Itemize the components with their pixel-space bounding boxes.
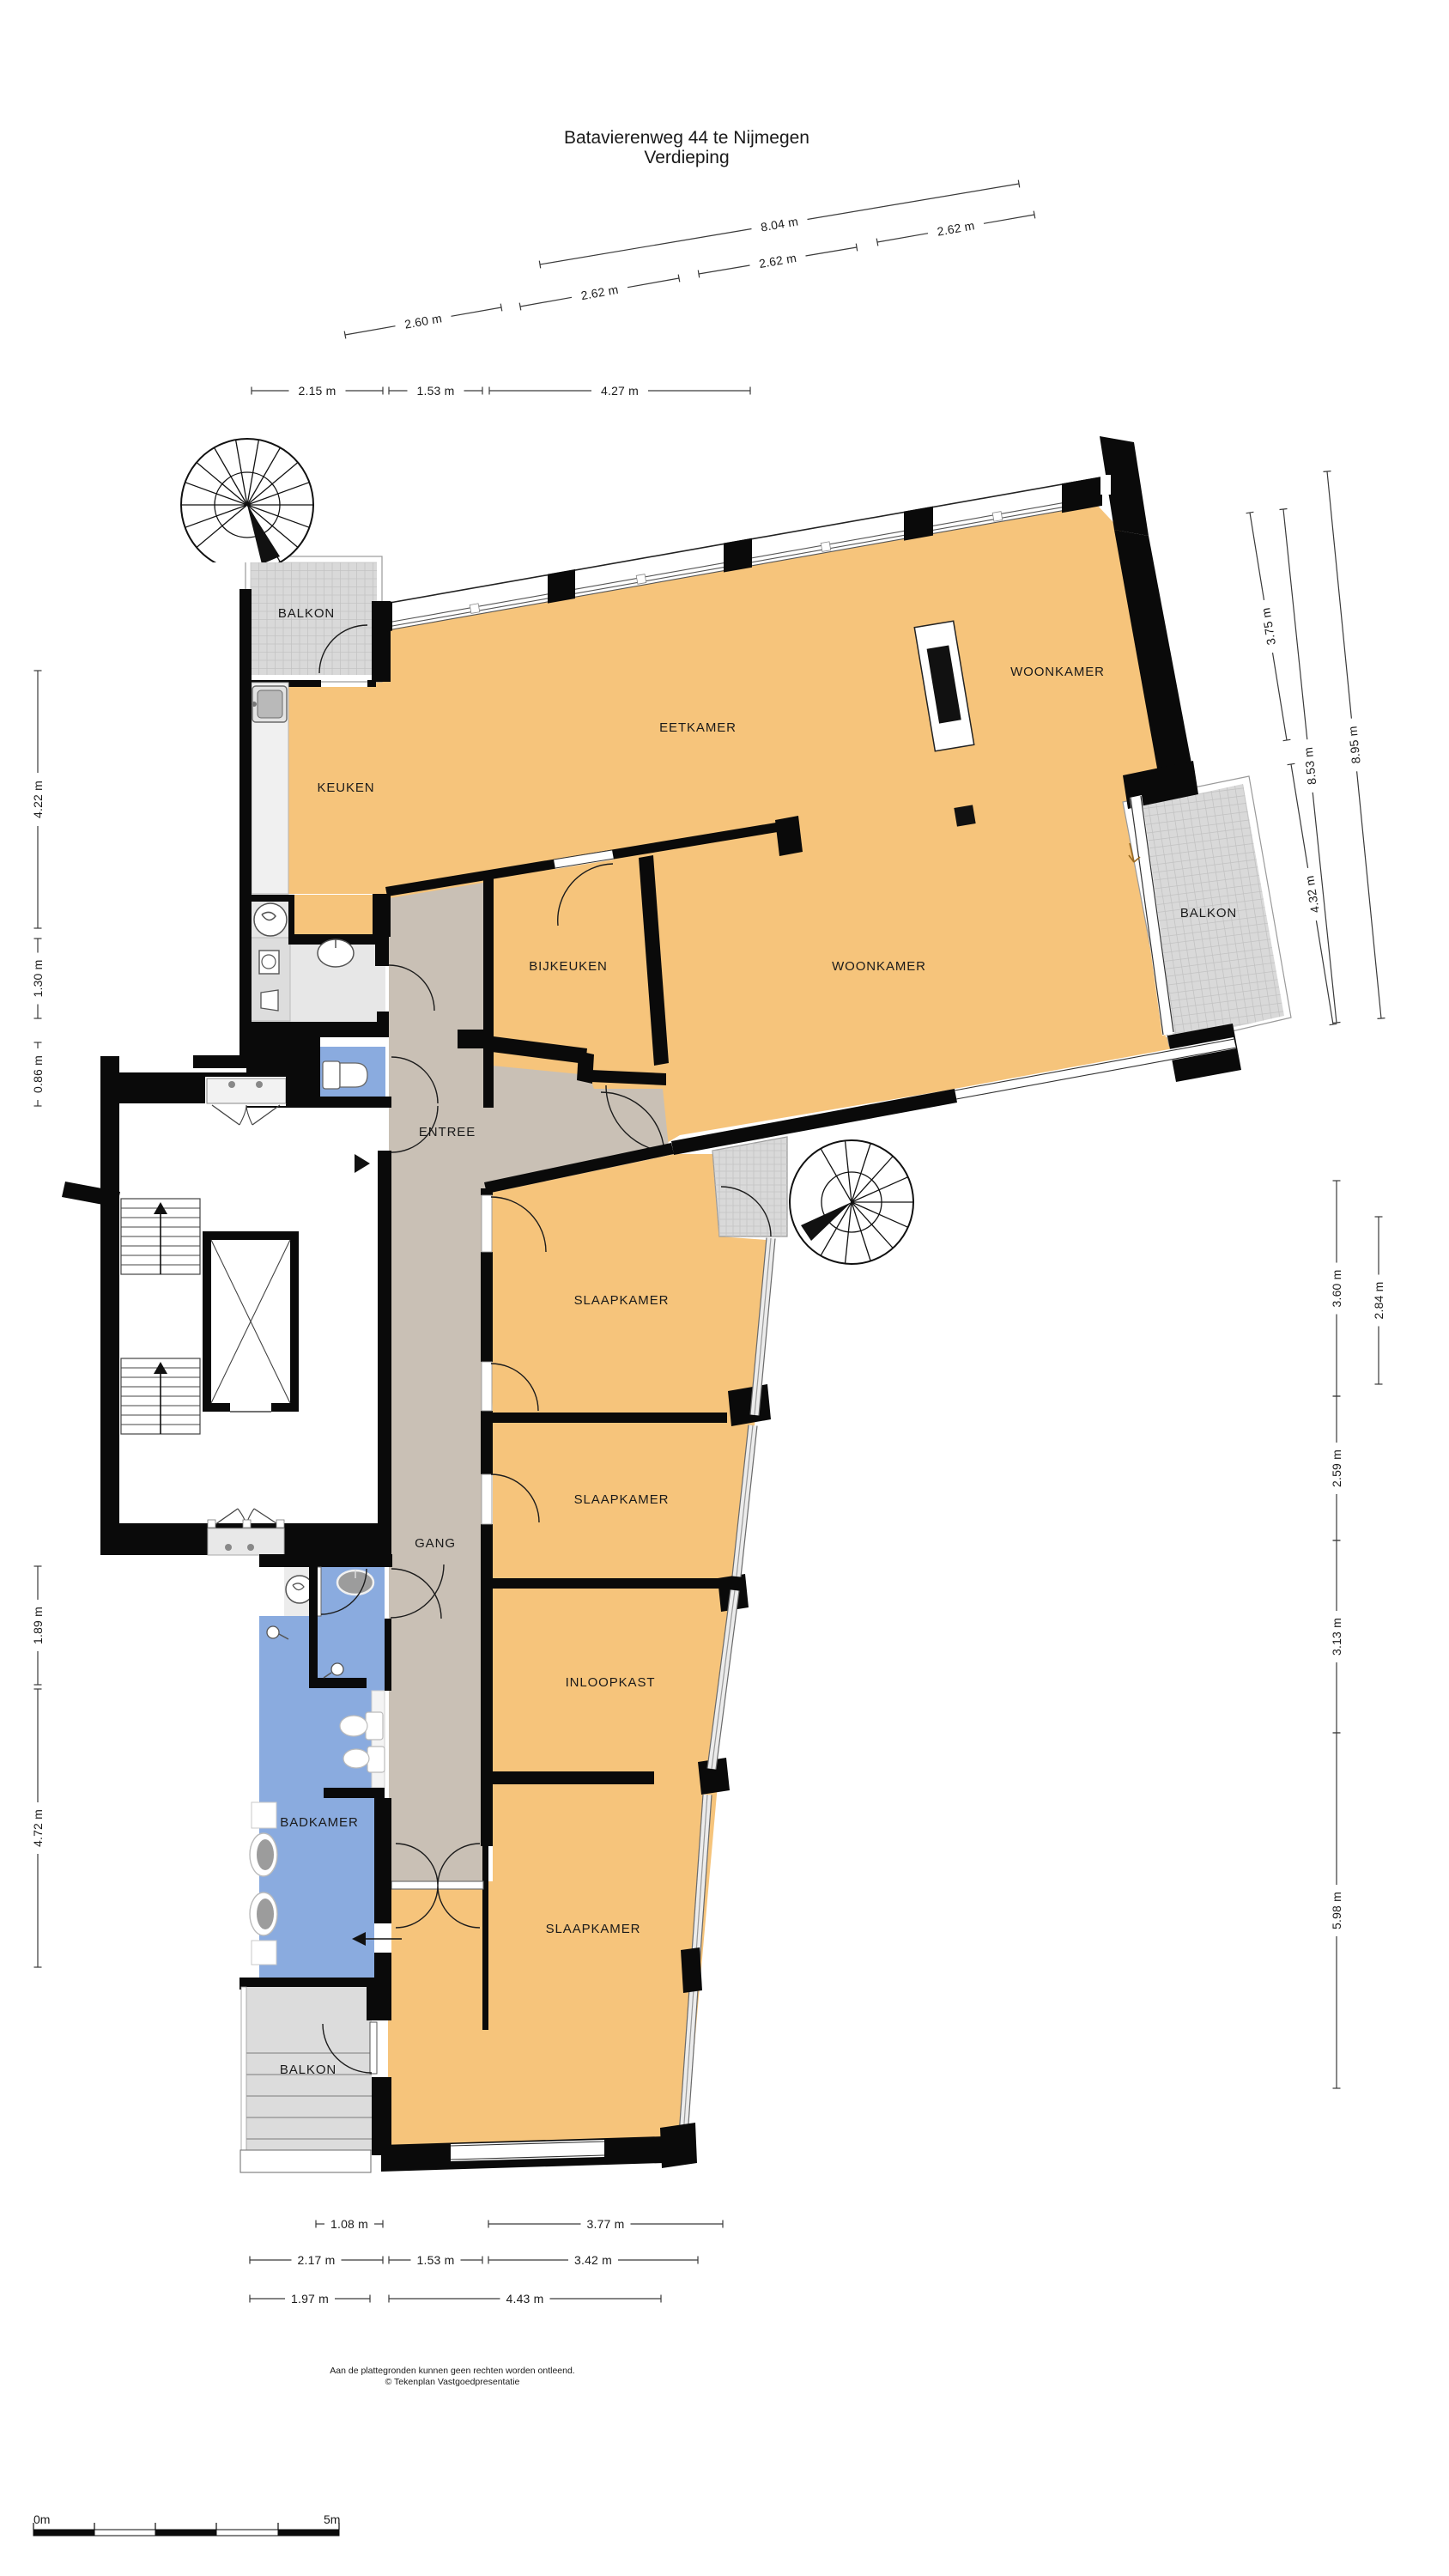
svg-text:EETKAMER: EETKAMER	[659, 720, 737, 735]
svg-text:Aan de plattegronden kunnen ge: Aan de plattegronden kunnen geen rechten…	[330, 2366, 574, 2376]
svg-text:ENTREE: ENTREE	[419, 1125, 476, 1139]
svg-text:BALKON: BALKON	[278, 606, 335, 621]
svg-text:2.84 m: 2.84 m	[1372, 1282, 1385, 1320]
svg-text:4.43 m: 4.43 m	[506, 2292, 544, 2306]
svg-text:2.15 m: 2.15 m	[299, 384, 336, 398]
svg-text:BALKON: BALKON	[280, 2063, 336, 2077]
svg-text:Verdieping: Verdieping	[644, 148, 729, 167]
svg-text:2.59 m: 2.59 m	[1330, 1449, 1343, 1487]
svg-text:2.17 m: 2.17 m	[298, 2253, 336, 2267]
svg-text:GANG: GANG	[415, 1536, 456, 1551]
svg-text:SLAAPKAMER: SLAAPKAMER	[546, 1922, 641, 1936]
svg-text:5m: 5m	[324, 2512, 340, 2526]
svg-text:WOONKAMER: WOONKAMER	[832, 959, 926, 974]
svg-text:SLAAPKAMER: SLAAPKAMER	[574, 1293, 670, 1308]
svg-text:BADKAMER: BADKAMER	[280, 1815, 358, 1830]
svg-text:© Tekenplan Vastgoedpresentati: © Tekenplan Vastgoedpresentatie	[385, 2377, 520, 2387]
svg-text:3.13 m: 3.13 m	[1330, 1618, 1343, 1656]
svg-text:BIJKEUKEN: BIJKEUKEN	[529, 959, 607, 974]
svg-text:Batavierenweg 44 te Nijmegen: Batavierenweg 44 te Nijmegen	[564, 128, 809, 148]
svg-text:WOONKAMER: WOONKAMER	[1010, 665, 1105, 679]
svg-text:4.22 m: 4.22 m	[31, 781, 45, 818]
svg-text:INLOOPKAST: INLOOPKAST	[566, 1675, 656, 1690]
svg-text:4.27 m: 4.27 m	[601, 384, 639, 398]
svg-text:1.30 m: 1.30 m	[31, 960, 45, 998]
svg-text:4.72 m: 4.72 m	[31, 1809, 45, 1847]
svg-text:3.77 m: 3.77 m	[587, 2217, 625, 2231]
svg-text:1.97 m: 1.97 m	[291, 2292, 329, 2306]
svg-text:0.86 m: 0.86 m	[31, 1055, 45, 1093]
svg-text:SLAAPKAMER: SLAAPKAMER	[574, 1492, 670, 1507]
svg-text:5.98 m: 5.98 m	[1330, 1892, 1343, 1929]
svg-text:BALKON: BALKON	[1180, 906, 1237, 920]
svg-text:1.08 m: 1.08 m	[330, 2217, 368, 2231]
svg-text:KEUKEN: KEUKEN	[317, 781, 374, 795]
svg-text:1.89 m: 1.89 m	[31, 1607, 45, 1644]
svg-text:3.42 m: 3.42 m	[574, 2253, 612, 2267]
svg-text:1.53 m: 1.53 m	[417, 2253, 455, 2267]
svg-text:3.60 m: 3.60 m	[1330, 1270, 1343, 1308]
svg-text:1.53 m: 1.53 m	[417, 384, 455, 398]
svg-text:0m: 0m	[33, 2512, 50, 2526]
